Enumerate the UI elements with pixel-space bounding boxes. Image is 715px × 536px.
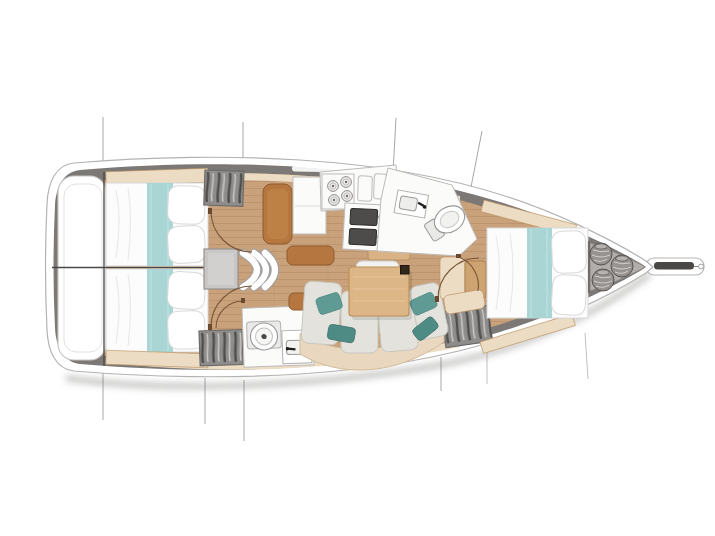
pillow	[551, 274, 587, 316]
hanging-locker-aft-bottom	[199, 329, 243, 365]
bench-cushion	[287, 246, 334, 265]
cutting-board	[358, 176, 373, 201]
bowsprit-fitting	[699, 264, 704, 269]
aft-cabin-starboard	[106, 269, 208, 368]
rope-coil	[592, 269, 614, 291]
pillow	[167, 271, 206, 310]
rope-coil	[611, 255, 633, 277]
pillow	[167, 225, 206, 264]
head-sink	[394, 190, 429, 218]
stove-burner	[328, 181, 339, 192]
bowsprit	[646, 258, 704, 275]
hanging-locker-aft-top	[204, 170, 244, 206]
anchor-roller	[654, 262, 694, 270]
yacht-floorplan-canvas	[0, 0, 715, 536]
stove-burner	[342, 191, 353, 202]
forward-head	[377, 168, 477, 256]
mast-step	[401, 266, 410, 275]
yacht-floorplan-page	[0, 0, 715, 536]
pillow	[551, 230, 586, 273]
stove-burner	[341, 177, 352, 188]
aft-cabin-port	[106, 168, 208, 266]
pillow	[167, 185, 205, 224]
rope-coil	[590, 243, 612, 265]
stove-burner	[329, 195, 340, 206]
toilet	[250, 323, 278, 351]
